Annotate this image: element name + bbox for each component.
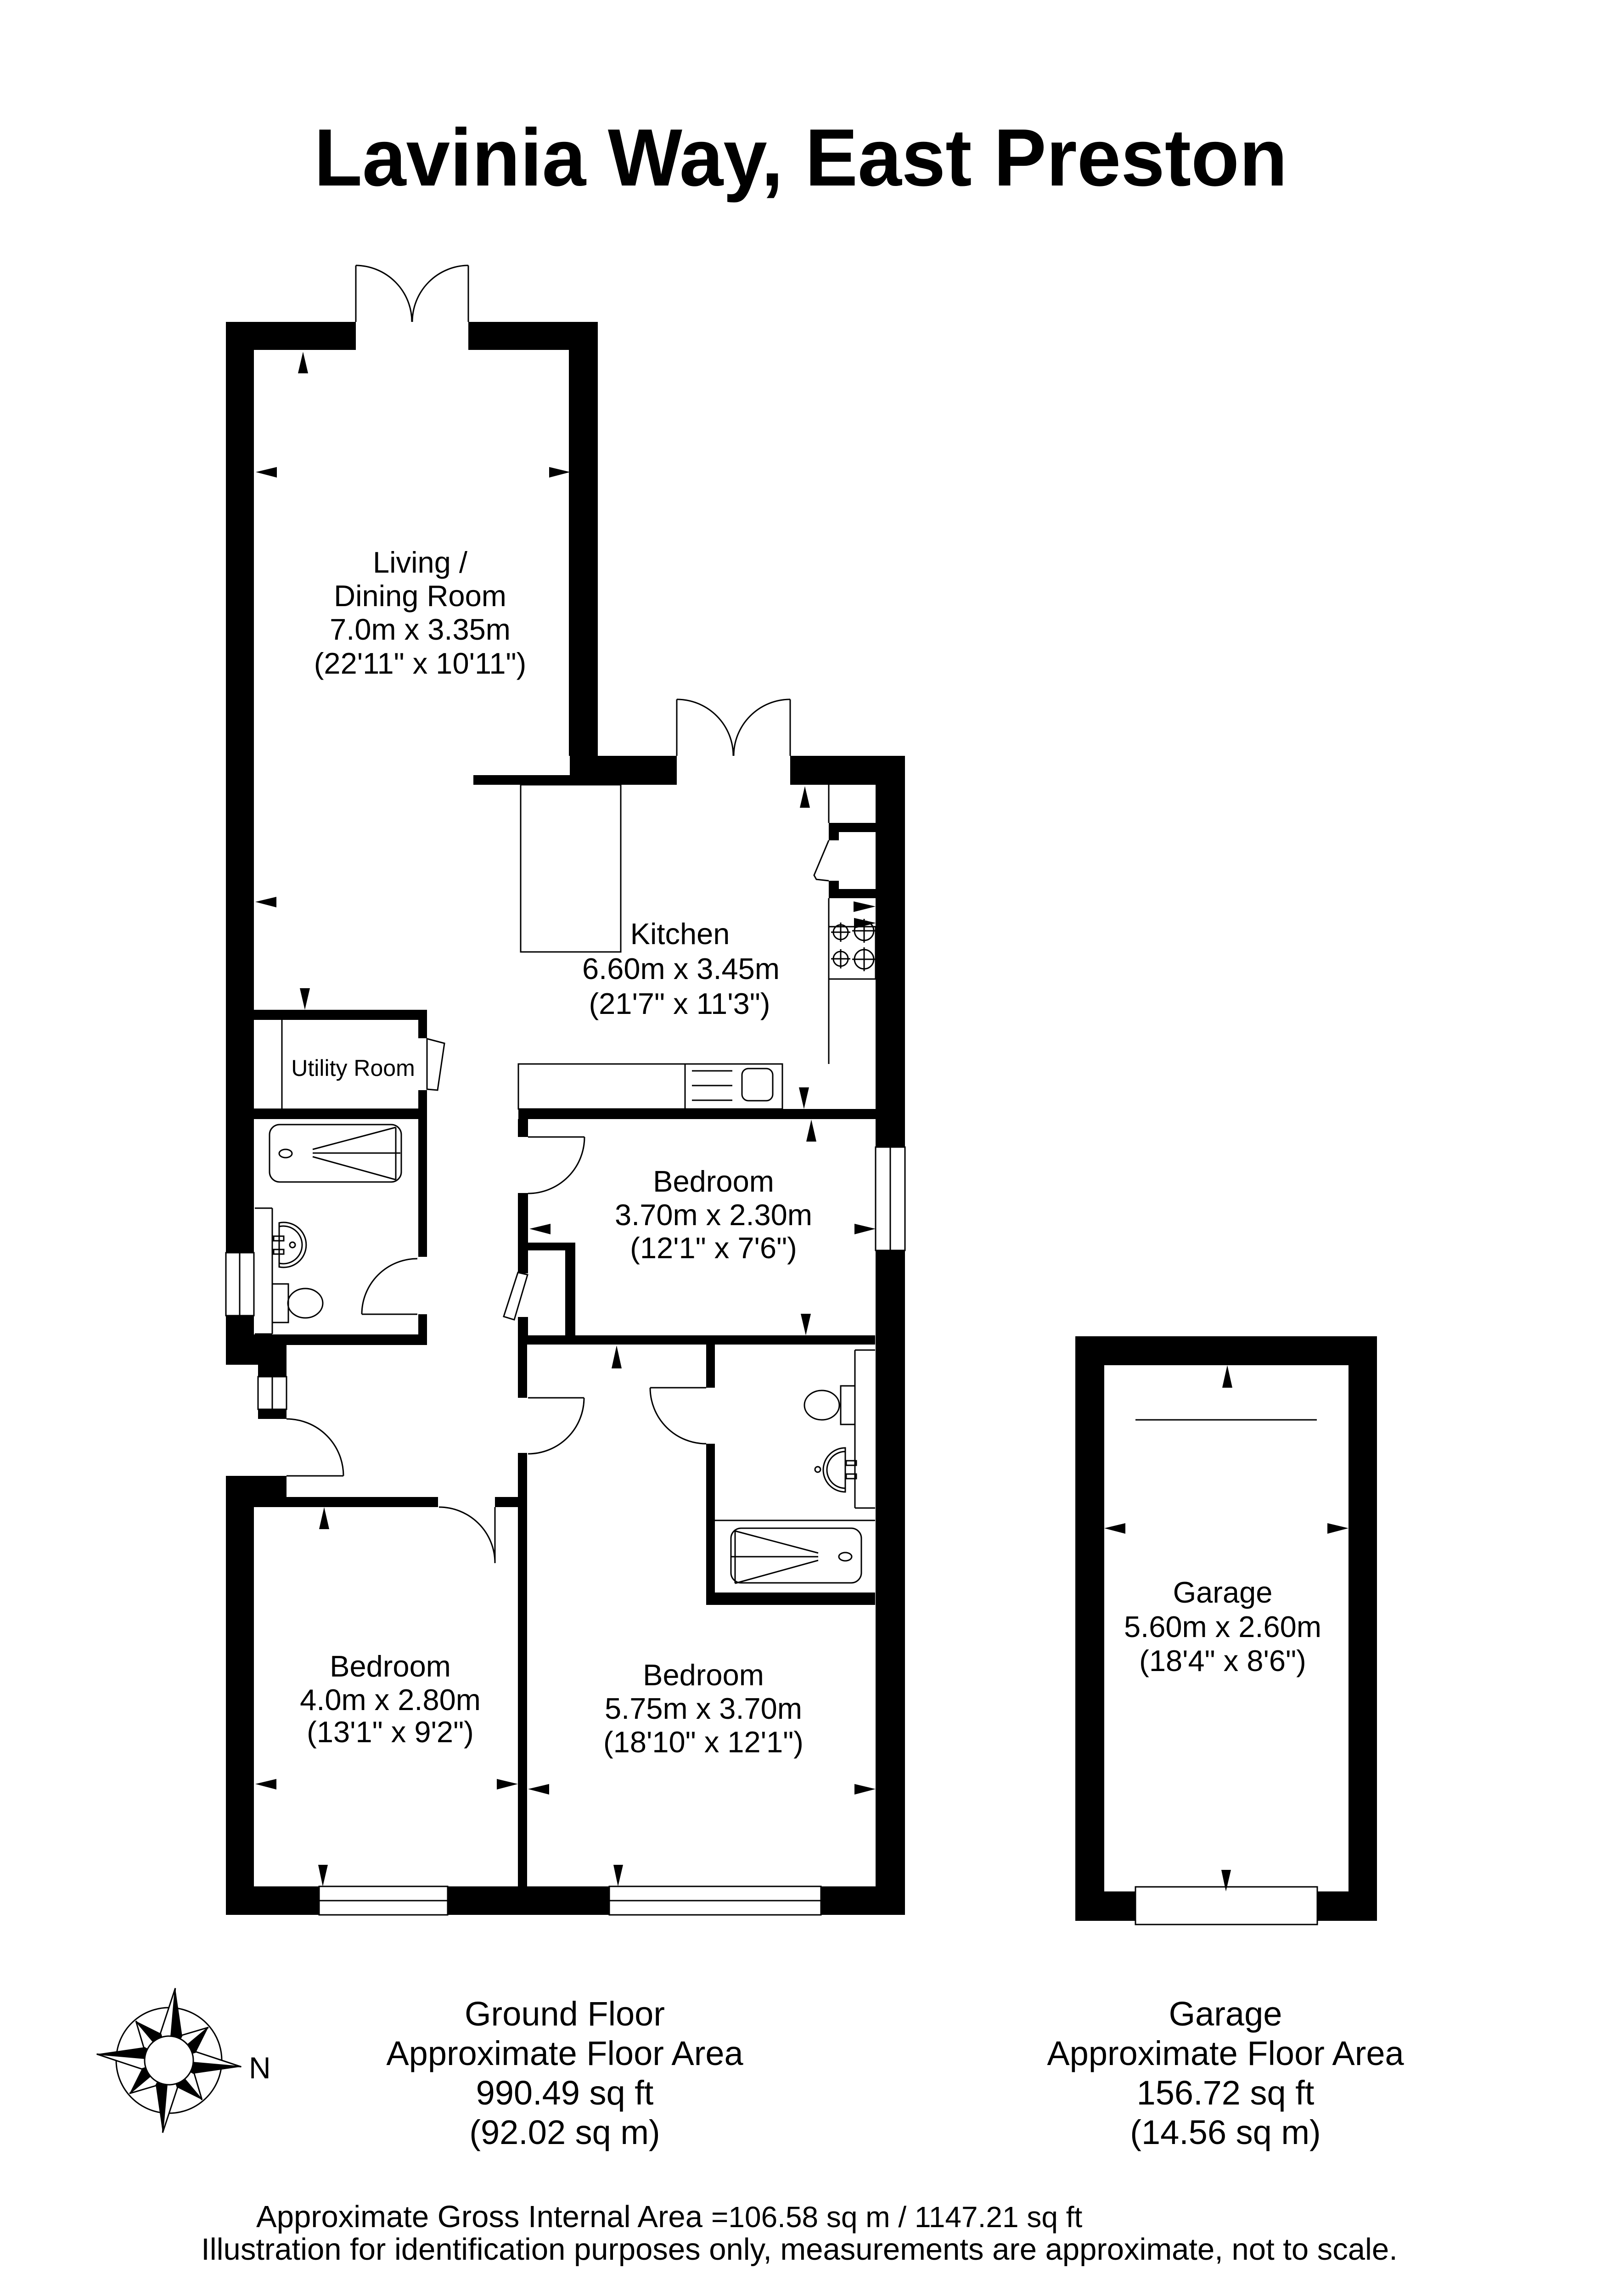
svg-text:N: N <box>249 2051 271 2085</box>
svg-text:Illustration for identificatio: Illustration for identification purposes… <box>201 2232 1398 2267</box>
svg-text:Kitchen: Kitchen <box>630 917 730 951</box>
svg-text:Living /: Living / <box>373 546 468 579</box>
svg-text:990.49 sq ft: 990.49 sq ft <box>476 2074 654 2112</box>
svg-text:Bedroom: Bedroom <box>653 1165 774 1198</box>
svg-text:(21'7" x 11'3"): (21'7" x 11'3") <box>589 987 770 1020</box>
svg-text:(18'10" x 12'1"): (18'10" x 12'1") <box>603 1725 803 1759</box>
svg-text:5.60m x 2.60m: 5.60m x 2.60m <box>1124 1610 1321 1643</box>
svg-text:Garage: Garage <box>1173 1576 1273 1609</box>
svg-text:(92.02 sq m): (92.02 sq m) <box>469 2113 660 2151</box>
svg-text:Approximate Floor Area: Approximate Floor Area <box>386 2034 743 2072</box>
svg-text:Approximate Floor Area: Approximate Floor Area <box>1047 2034 1404 2072</box>
svg-text:6.60m x 3.45m: 6.60m x 3.45m <box>582 952 780 985</box>
svg-text:(22'11" x 10'11"): (22'11" x 10'11") <box>314 647 526 680</box>
svg-text:Approximate Gross Internal Are: Approximate Gross Internal Area=106.58 s… <box>256 2200 1082 2234</box>
svg-text:7.0m x 3.35m: 7.0m x 3.35m <box>330 613 511 646</box>
svg-text:(18'4" x 8'6"): (18'4" x 8'6") <box>1139 1644 1306 1677</box>
svg-text:(14.56 sq m): (14.56 sq m) <box>1130 2113 1320 2151</box>
svg-text:Lavinia Way, East Preston: Lavinia Way, East Preston <box>314 112 1287 203</box>
svg-text:(13'1" x 9'2"): (13'1" x 9'2") <box>307 1715 474 1749</box>
svg-text:Garage: Garage <box>1169 1995 1282 2033</box>
svg-text:Bedroom: Bedroom <box>330 1649 451 1683</box>
svg-text:Bedroom: Bedroom <box>643 1658 764 1692</box>
svg-text:4.0m x 2.80m: 4.0m x 2.80m <box>300 1683 481 1716</box>
svg-text:(12'1" x 7'6"): (12'1" x 7'6") <box>630 1231 797 1265</box>
svg-text:Dining Room: Dining Room <box>334 579 506 613</box>
svg-text:Ground Floor: Ground Floor <box>465 1995 665 2033</box>
svg-text:5.75m x 3.70m: 5.75m x 3.70m <box>605 1692 802 1725</box>
svg-text:156.72 sq ft: 156.72 sq ft <box>1137 2074 1315 2112</box>
svg-text:3.70m x 2.30m: 3.70m x 2.30m <box>615 1198 812 1232</box>
svg-text:Utility Room: Utility Room <box>291 1055 415 1081</box>
